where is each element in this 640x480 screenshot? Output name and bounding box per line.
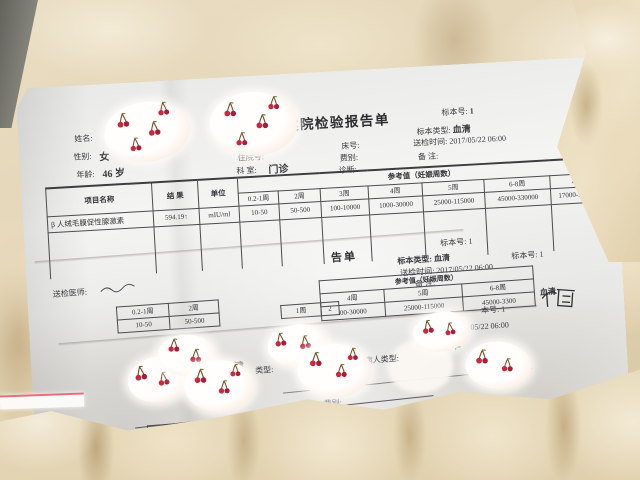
ref-value: 10-50: [117, 316, 170, 333]
cherry-sticker: [297, 343, 371, 397]
week-header-fragment: 1周: [281, 303, 322, 319]
handwriting-squiggle: [98, 281, 139, 296]
sex-value: 女: [99, 148, 110, 164]
cherry-icon: [347, 347, 358, 360]
cherry-icon: [147, 120, 162, 137]
cherry-icon: [256, 114, 269, 129]
send-time-label-text: 送检时间:: [413, 137, 448, 148]
cherry-icon: [309, 352, 322, 367]
cherry-sticker: [210, 92, 298, 156]
specimen-type-value: 血清: [452, 124, 471, 135]
specimen-no-label-text: 标本号:: [441, 107, 468, 117]
light-streak-artifact: [0, 393, 84, 410]
specimen-no-label: 标本号: 1: [441, 105, 474, 118]
cherry-sticker: [101, 97, 194, 167]
cherry-icon: [273, 332, 287, 348]
bed-label: 床号:: [341, 140, 360, 152]
sheet3-title-b: 类型:: [255, 364, 274, 376]
sex-label: 性别:: [73, 151, 92, 163]
ref-value: 50-500: [169, 313, 220, 329]
name-label: 姓名:: [74, 133, 93, 145]
cherry-icon: [236, 132, 248, 146]
cherry-icon: [194, 368, 207, 383]
col-result-header: 结 果: [151, 180, 198, 211]
age-value: 46 岁: [102, 164, 125, 180]
cherry-icon: [133, 364, 148, 381]
cherry-icon: [443, 321, 456, 336]
sender-doctor-label: 送检医师:: [52, 287, 87, 300]
cherry-icon: [218, 380, 230, 394]
cherry-icon: [157, 101, 171, 116]
cherry-icon: [168, 338, 180, 352]
cherry-sticker: [184, 359, 255, 412]
photo-scene: 姓名: 性别: 女 年龄: 46 岁 妇幼保健院检验报告单 病人类型: 住院号:…: [0, 0, 640, 480]
cherry-icon: [129, 137, 143, 152]
cherry-icon: [298, 334, 312, 350]
sheet2-specimen-no: 标本号: 1: [440, 236, 473, 249]
cherry-icon: [475, 349, 488, 364]
specimen-no-fragment: 标本号: 1: [511, 249, 544, 262]
cherry-icon: [224, 102, 237, 117]
cherry-sticker: [465, 340, 532, 390]
age-label: 年龄:: [76, 169, 95, 181]
sheet2-title-fragment: 告单: [330, 248, 357, 266]
cherry-icon: [156, 371, 170, 387]
cherry-icon: [230, 364, 241, 377]
send-time-value: 2017/05/22 06:00: [449, 134, 506, 146]
cherry-icon: [116, 112, 131, 129]
cherry-icon: [421, 319, 435, 335]
fee-label: 费别:: [340, 152, 359, 164]
note-label: 备 注:: [418, 150, 439, 162]
col-unit-header: 单位: [197, 178, 239, 208]
cherry-icon: [268, 96, 280, 110]
specimen-no-value: 1: [469, 106, 473, 115]
cherry-icon: [335, 363, 347, 377]
cherry-icon: [190, 348, 202, 362]
cherry-icon: [501, 358, 513, 372]
